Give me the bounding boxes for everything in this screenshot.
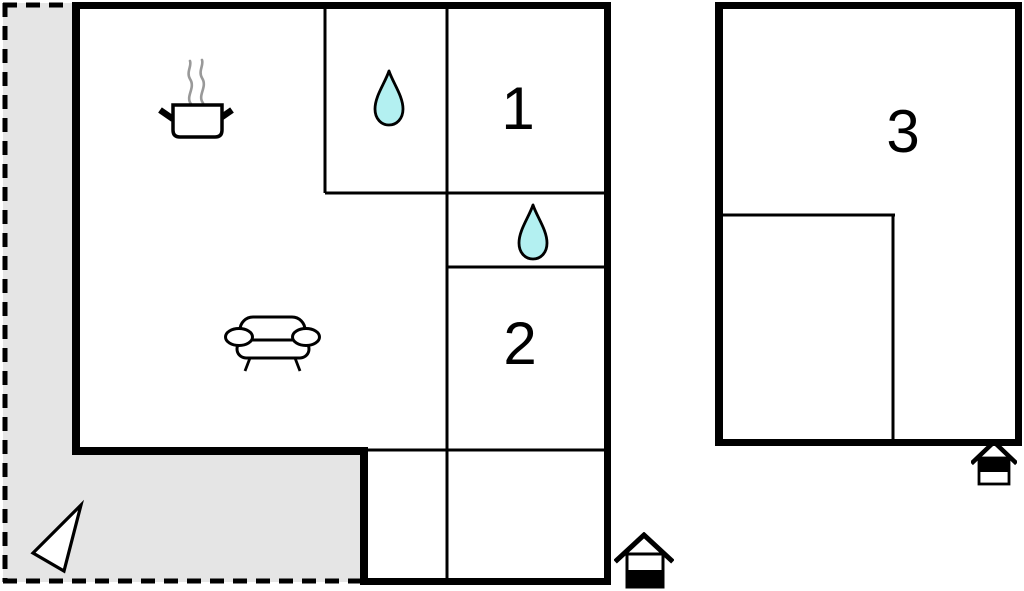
pot-body xyxy=(173,105,222,137)
annex-inner-walls xyxy=(723,214,895,440)
room-3-label: 3 xyxy=(886,102,919,162)
water-drop-icon-wc xyxy=(516,203,550,261)
room-1-label: 1 xyxy=(501,79,534,139)
water-drop-icon-bathroom xyxy=(372,69,406,127)
sofa-armrest-right xyxy=(293,329,320,346)
room-2-label: 2 xyxy=(503,314,536,374)
main-building-level-icon xyxy=(614,532,674,590)
sofa-icon xyxy=(224,312,324,374)
stove-pot-icon xyxy=(156,57,236,141)
floor-plan-canvas: 1 2 3 xyxy=(0,0,1024,591)
annex-building-outer-walls xyxy=(715,2,1022,446)
steam-lines xyxy=(189,60,204,104)
sofa-armrest-left xyxy=(226,329,253,346)
sofa-legs xyxy=(245,358,300,371)
annex-level-icon xyxy=(971,439,1017,487)
